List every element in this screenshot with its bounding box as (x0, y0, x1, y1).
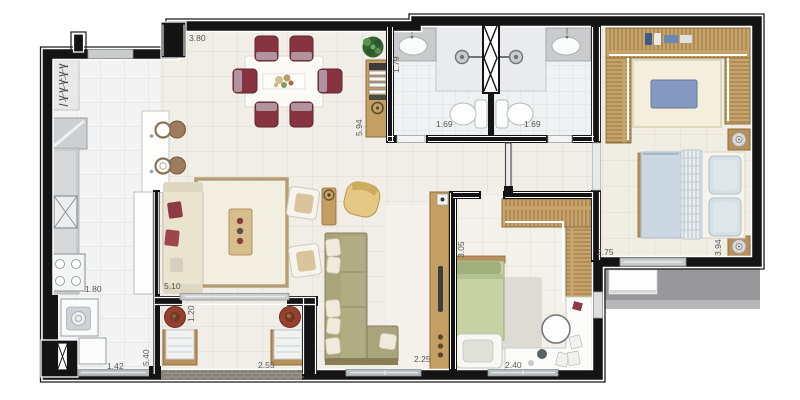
svg-text:1.80: 1.80 (85, 284, 102, 294)
svg-text:1.42: 1.42 (107, 361, 124, 371)
svg-text:3.94: 3.94 (713, 239, 723, 256)
svg-text:5.40: 5.40 (141, 349, 151, 366)
svg-text:2.40: 2.40 (505, 360, 522, 370)
svg-text:2.25: 2.25 (414, 354, 431, 364)
svg-text:5.10: 5.10 (164, 281, 181, 291)
svg-text:3.05: 3.05 (456, 241, 466, 258)
svg-text:1.69: 1.69 (436, 119, 453, 129)
svg-text:3.80: 3.80 (189, 33, 206, 43)
svg-text:5.94: 5.94 (354, 119, 364, 136)
svg-text:2.75: 2.75 (597, 247, 614, 257)
svg-text:1.20: 1.20 (186, 305, 196, 322)
svg-text:1.69: 1.69 (524, 119, 541, 129)
svg-text:2.55: 2.55 (258, 360, 275, 370)
svg-text:1.79: 1.79 (391, 56, 401, 73)
